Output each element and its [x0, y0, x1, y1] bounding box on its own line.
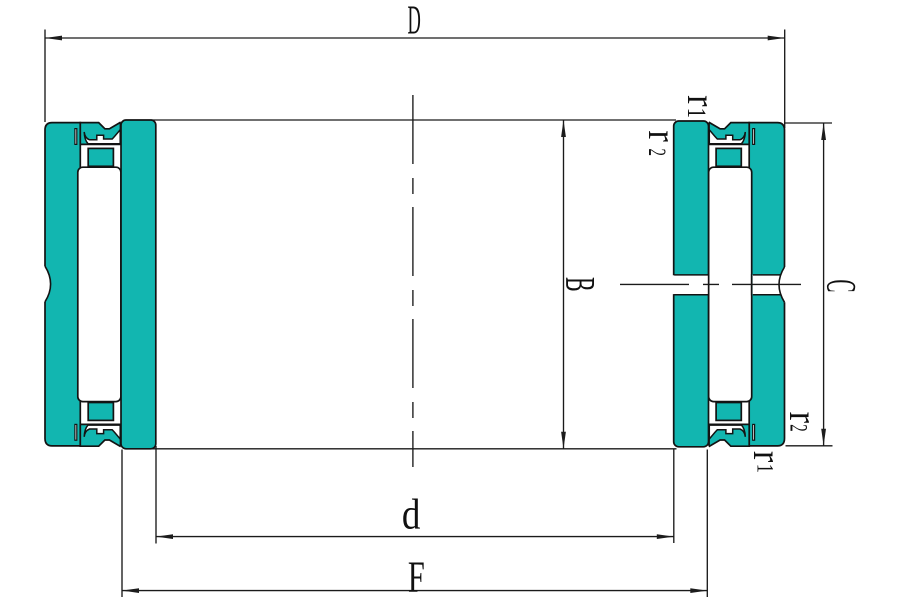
svg-text:D: D	[408, 0, 421, 42]
svg-text:B: B	[556, 277, 602, 292]
svg-text:r: r	[780, 412, 824, 424]
svg-text:C: C	[817, 280, 863, 293]
svg-text:2: 2	[784, 424, 811, 432]
svg-text:r: r	[744, 451, 788, 463]
svg-text:1: 1	[752, 464, 779, 473]
svg-text:1: 1	[681, 108, 710, 118]
svg-text:F: F	[408, 553, 425, 600]
svg-text:2: 2	[643, 149, 670, 157]
svg-text:r: r	[678, 95, 722, 107]
svg-text:d: d	[402, 490, 420, 538]
